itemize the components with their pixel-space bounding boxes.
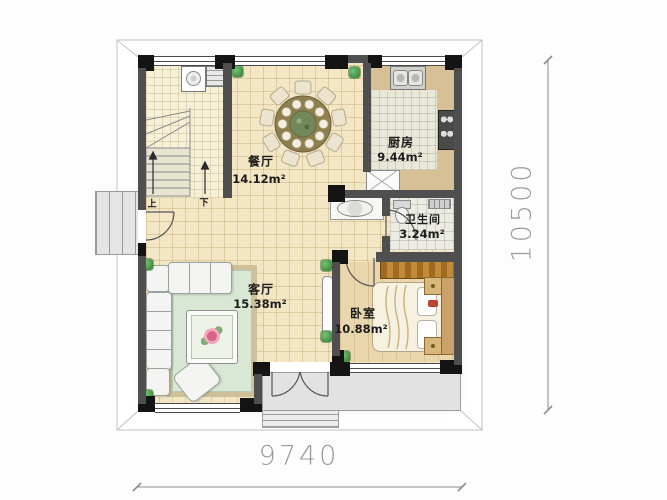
wall — [348, 55, 368, 63]
room-area-kitchen: 9.44m² — [377, 150, 422, 164]
wall-bedroom-top — [376, 252, 462, 262]
wall-pier — [330, 362, 350, 376]
main-entrance-opening — [270, 362, 330, 372]
floor-plan-canvas: 餐厅 14.12m² 厨房 9.44m² 卫生间 3.24m² 客厅 15.38… — [0, 0, 667, 500]
wall-pier — [328, 185, 345, 202]
window — [350, 363, 440, 373]
wall-living-bedroom — [332, 262, 340, 356]
room-label-kitchen: 厨房 — [388, 134, 414, 151]
room-label-bedroom: 卧室 — [350, 305, 376, 322]
wall-pier — [138, 243, 146, 257]
plant-icon — [321, 260, 332, 271]
room-area-bedroom: 10.88m² — [334, 322, 387, 336]
nightstand — [424, 337, 442, 355]
room-area-living: 15.38m² — [233, 297, 286, 311]
stair-down-label: 下 — [199, 196, 208, 209]
wall-pier — [325, 55, 348, 69]
stair-up-label: 上 — [147, 197, 156, 210]
red-throw — [428, 300, 438, 307]
wall-kitchen — [363, 63, 371, 172]
wall — [138, 68, 146, 210]
window — [382, 56, 445, 66]
room-area-dining: 14.12m² — [232, 172, 285, 186]
room-label-bathroom: 卫生间 — [405, 211, 441, 227]
wall-jog — [254, 374, 262, 404]
side-stoop — [95, 191, 139, 255]
coffee-table — [186, 310, 238, 364]
wall-bath-top — [345, 190, 462, 198]
dimension-height: 10500 — [507, 162, 538, 263]
sofa-left — [146, 292, 172, 370]
window — [155, 403, 240, 413]
wall-bath-left — [382, 198, 390, 216]
plant-icon — [349, 67, 360, 78]
porch-steps — [262, 410, 339, 428]
window — [154, 56, 215, 66]
dimension-width: 9740 — [259, 441, 340, 472]
nightstand — [424, 277, 442, 295]
wall — [138, 256, 146, 404]
room-label-living: 客厅 — [248, 281, 274, 298]
sofa-top — [168, 262, 232, 294]
window — [235, 56, 325, 66]
wash-basin — [337, 200, 373, 217]
room-label-dining: 餐厅 — [248, 153, 274, 170]
coffee-table-decor — [191, 315, 233, 359]
washing-machine — [181, 66, 206, 92]
door-opening — [138, 210, 146, 243]
room-area-bathroom: 3.24m² — [399, 227, 444, 241]
wall-bath-left — [382, 236, 390, 252]
plant-icon — [321, 331, 332, 342]
kitchen-sink — [390, 66, 426, 90]
wall — [454, 68, 462, 365]
shower-fixture — [428, 199, 451, 209]
wall-stair — [223, 63, 232, 198]
porch — [262, 372, 461, 411]
